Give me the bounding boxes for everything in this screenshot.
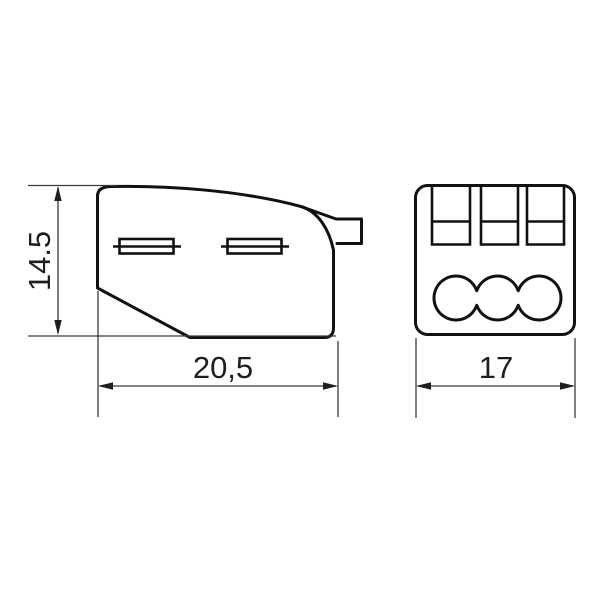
length-dimension: 20,5 [98,291,338,417]
side-view-slot-2 [221,239,289,254]
arrow-left-icon [98,382,113,389]
width-dimension: 17 [416,338,575,418]
arrow-up-icon [54,186,61,201]
width-dimension-label: 17 [479,350,513,385]
height-dimension: 14.5 [22,186,336,337]
arrow-right-icon [560,382,575,389]
side-view-slot-1 [113,239,181,254]
front-view-clamp-slot-3-rect [527,187,564,245]
length-dimension-label: 20,5 [193,350,253,385]
arrow-left-icon [416,382,431,389]
front-view [416,186,575,335]
front-view-clamp-slot-3 [527,187,564,245]
arrow-down-icon [54,320,61,335]
arrow-right-icon [323,382,338,389]
side-view-body-outline [98,186,334,337]
height-dimension-label: 14.5 [22,231,57,291]
front-view-clamp-slot-2-rect [481,187,518,245]
front-view-clamp-slot-1 [432,187,470,245]
side-view [98,186,362,337]
connector-dimension-drawing: 14.5 20,5 17 [0,0,600,600]
front-view-clamp-slot-2 [481,187,518,245]
front-view-clamp-slot-1-rect [432,187,470,245]
front-view-wire-holes [434,276,561,320]
technical-drawing-canvas: 14.5 20,5 17 [0,0,600,600]
